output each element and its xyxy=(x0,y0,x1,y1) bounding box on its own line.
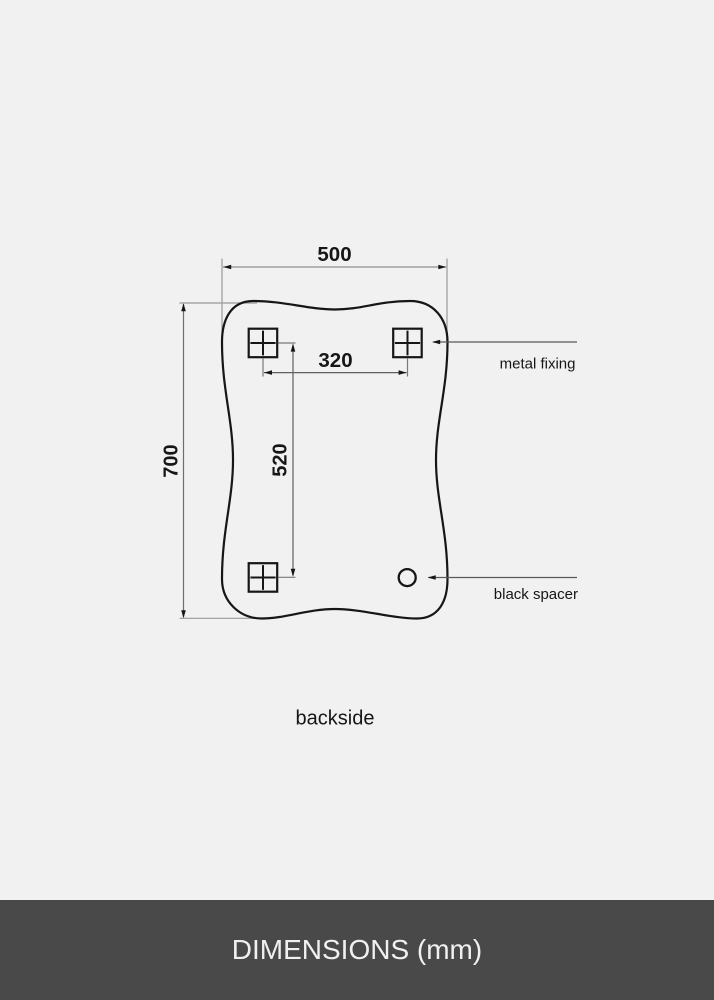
svg-text:backside: backside xyxy=(296,708,375,730)
svg-text:520: 520 xyxy=(270,443,292,476)
svg-text:500: 500 xyxy=(317,243,351,266)
svg-text:700: 700 xyxy=(160,444,182,477)
svg-text:320: 320 xyxy=(318,349,352,372)
svg-text:metal fixing: metal fixing xyxy=(500,356,576,373)
svg-text:black spacer: black spacer xyxy=(494,586,578,603)
